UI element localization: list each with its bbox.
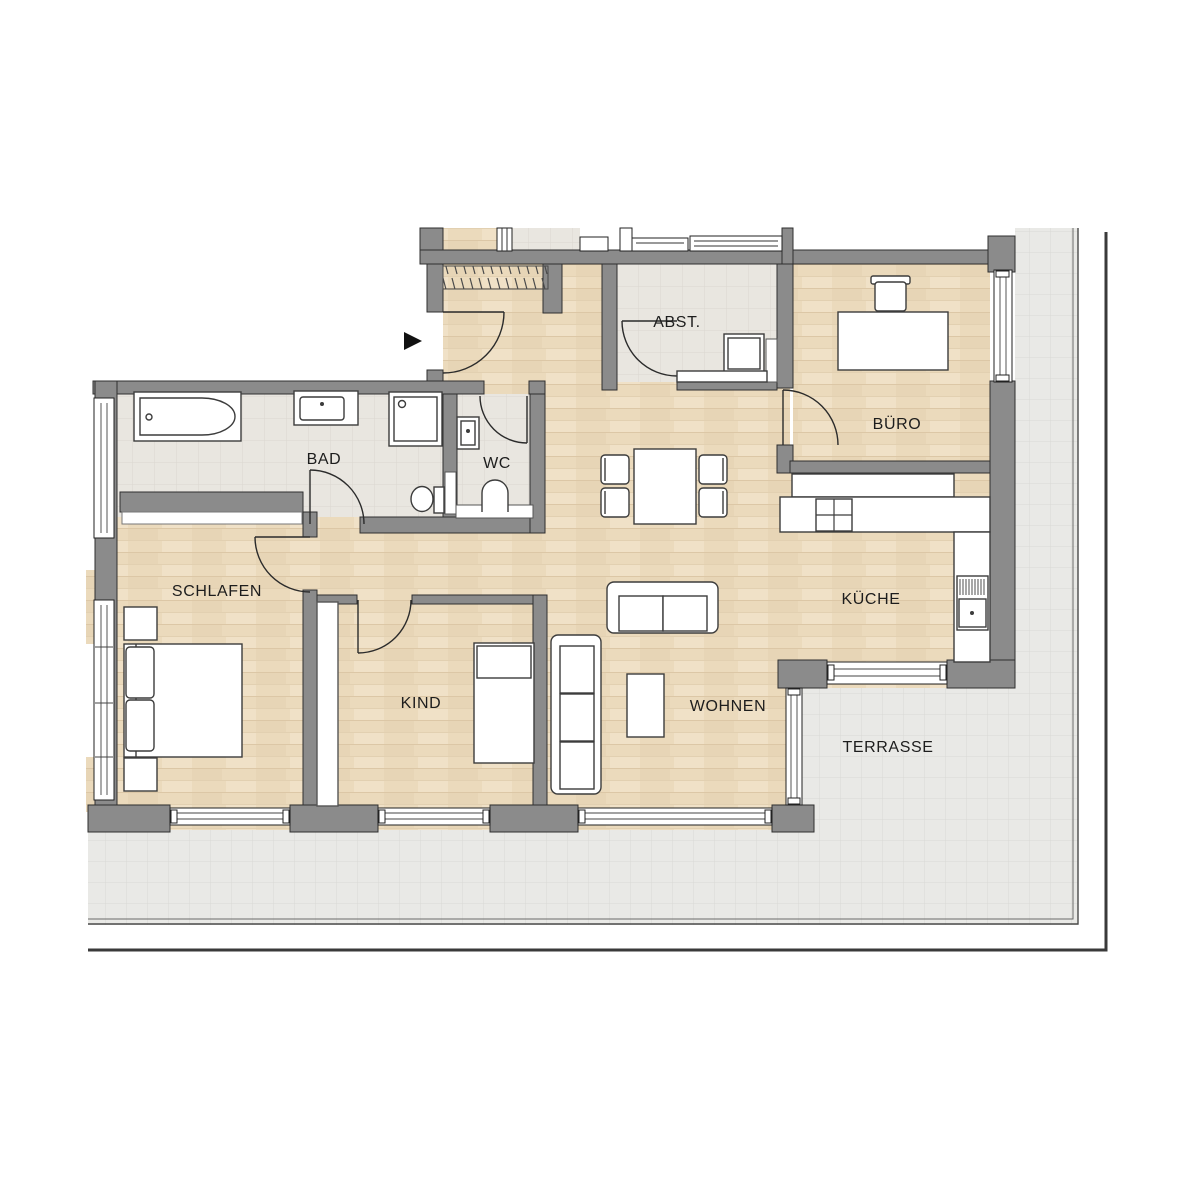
label-terrasse: TERRASSE — [842, 739, 933, 756]
wall-kind-east — [533, 595, 547, 807]
wall-corridor-north — [360, 517, 530, 533]
wall-office-west — [777, 264, 793, 388]
entrance-arrow-icon — [404, 332, 422, 350]
wall-schlafen-north — [120, 492, 303, 512]
vanity-sink — [294, 391, 358, 425]
floor-fragment-tile — [512, 228, 580, 251]
toilet-bad — [411, 487, 444, 514]
single-bed — [474, 643, 534, 763]
shower — [389, 392, 442, 446]
label-bad: BAD — [307, 451, 342, 468]
wall-storage-west — [602, 264, 617, 390]
terrace-east-strip — [1015, 228, 1078, 925]
label-buero: BÜRO — [873, 415, 922, 433]
wardrobe-kind — [317, 602, 338, 806]
wall-schlafen-kind — [303, 590, 317, 807]
nightstand-1 — [124, 607, 157, 640]
window-wohnen-east-glass — [786, 688, 802, 805]
wall-north-main — [420, 250, 1015, 264]
label-kueche: KÜCHE — [841, 590, 900, 608]
coat-rack-hatch — [443, 266, 548, 289]
window-kind-south — [378, 808, 490, 825]
label-kind: KIND — [401, 695, 442, 712]
wall-south-pier-2 — [290, 805, 378, 832]
double-bed — [124, 644, 242, 757]
window-bad-west — [94, 398, 114, 538]
sofa-2seat — [607, 582, 718, 633]
wall-office-west-stub — [782, 228, 793, 264]
wall-east — [990, 381, 1015, 668]
wall-entry-north — [427, 264, 443, 312]
wall-wc-north-stub — [529, 381, 545, 394]
duct-bad-wc — [445, 472, 456, 514]
wall-kitchen-south-pier-west — [778, 660, 827, 688]
cooktop — [816, 499, 852, 531]
terrace-corner — [802, 688, 1015, 830]
wc-toilet — [482, 480, 508, 512]
wall-kitchen-south-pier-east — [947, 660, 1015, 688]
terrace-south-strip — [88, 830, 1078, 925]
label-wohnen: WOHNEN — [690, 698, 766, 715]
window-buero-east — [994, 270, 1012, 382]
coffee-table — [627, 674, 664, 737]
wall-kind-north-east — [412, 595, 547, 604]
floor-plan-svg: SCHLAFEN KIND WOHNEN KÜCHE BÜRO ABST. BA… — [0, 0, 1200, 1200]
floor-plan-page: SCHLAFEN KIND WOHNEN KÜCHE BÜRO ABST. BA… — [0, 0, 1200, 1200]
nightstand-2 — [124, 758, 157, 791]
sofa-3seat — [551, 635, 601, 794]
wall-kitchen-north — [790, 461, 1015, 473]
kitchen-sink — [957, 576, 988, 630]
window-wohnen-south — [578, 808, 772, 825]
desk-chair — [871, 276, 910, 311]
desk — [838, 312, 948, 370]
window-schlafen-west — [94, 600, 114, 800]
wall-south-pier-4 — [772, 805, 814, 832]
wall-northeast-pier — [988, 236, 1015, 272]
storage-shelf — [677, 371, 767, 382]
label-wc: WC — [483, 455, 511, 472]
bathtub — [134, 392, 241, 441]
wc-sink — [457, 417, 479, 449]
window-kueche-south — [827, 662, 947, 684]
washing-machine — [724, 334, 764, 373]
label-abstellraum: ABST. — [653, 314, 700, 331]
closet-schlafen-north — [122, 512, 302, 524]
window-schlafen-south — [170, 808, 290, 825]
wall-south-pier-1 — [88, 805, 170, 832]
wall-south-pier-3 — [490, 805, 578, 832]
label-schlafen: SCHLAFEN — [172, 583, 262, 600]
dining-table — [634, 449, 696, 524]
